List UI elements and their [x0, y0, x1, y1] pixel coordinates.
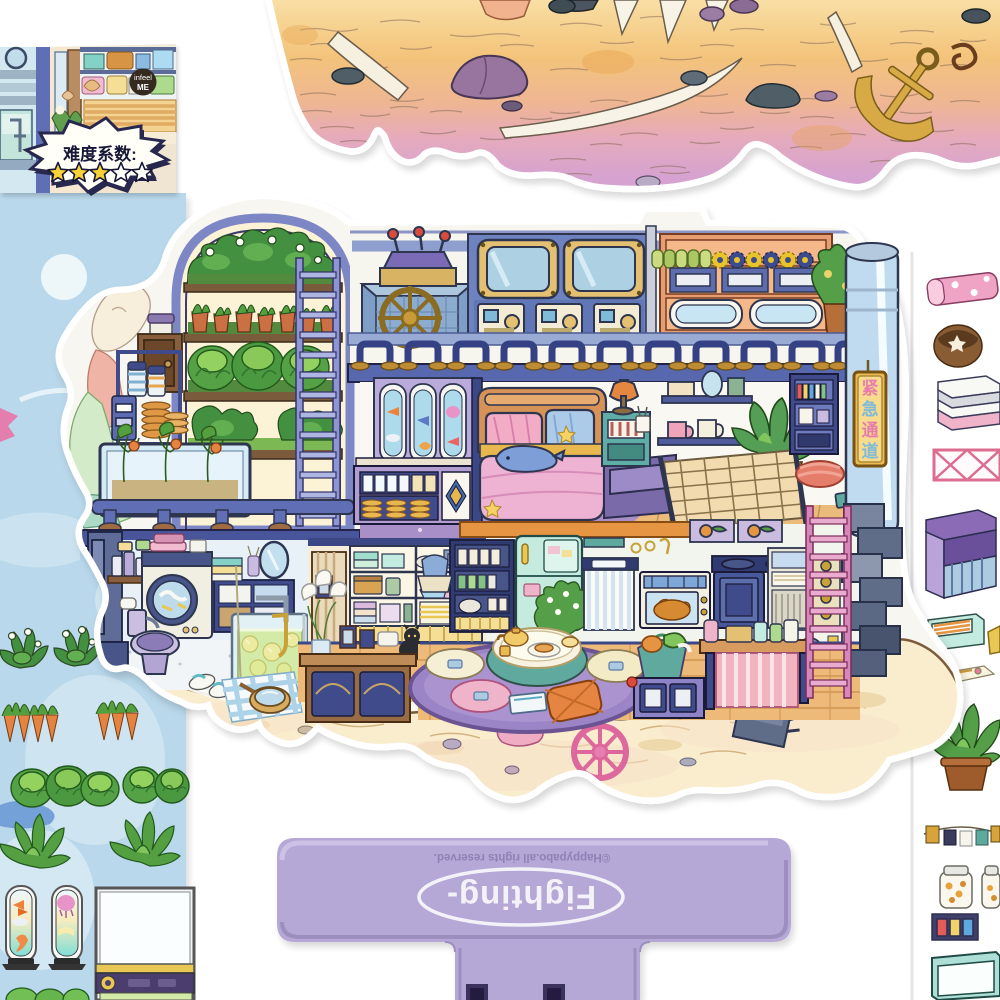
svg-text:急: 急 — [862, 399, 879, 419]
svg-text:infeel: infeel — [134, 73, 152, 82]
svg-text:道: 道 — [862, 441, 879, 461]
svg-text:紧: 紧 — [862, 379, 879, 398]
svg-text:难度系数:: 难度系数: — [62, 144, 137, 164]
svg-text:通: 通 — [862, 421, 879, 440]
svg-text:ME: ME — [137, 83, 150, 92]
svg-text:©Happypabo.all rights reserved: ©Happypabo.all rights reserved. — [434, 851, 611, 863]
svg-text:Fighting-: Fighting- — [446, 879, 596, 916]
